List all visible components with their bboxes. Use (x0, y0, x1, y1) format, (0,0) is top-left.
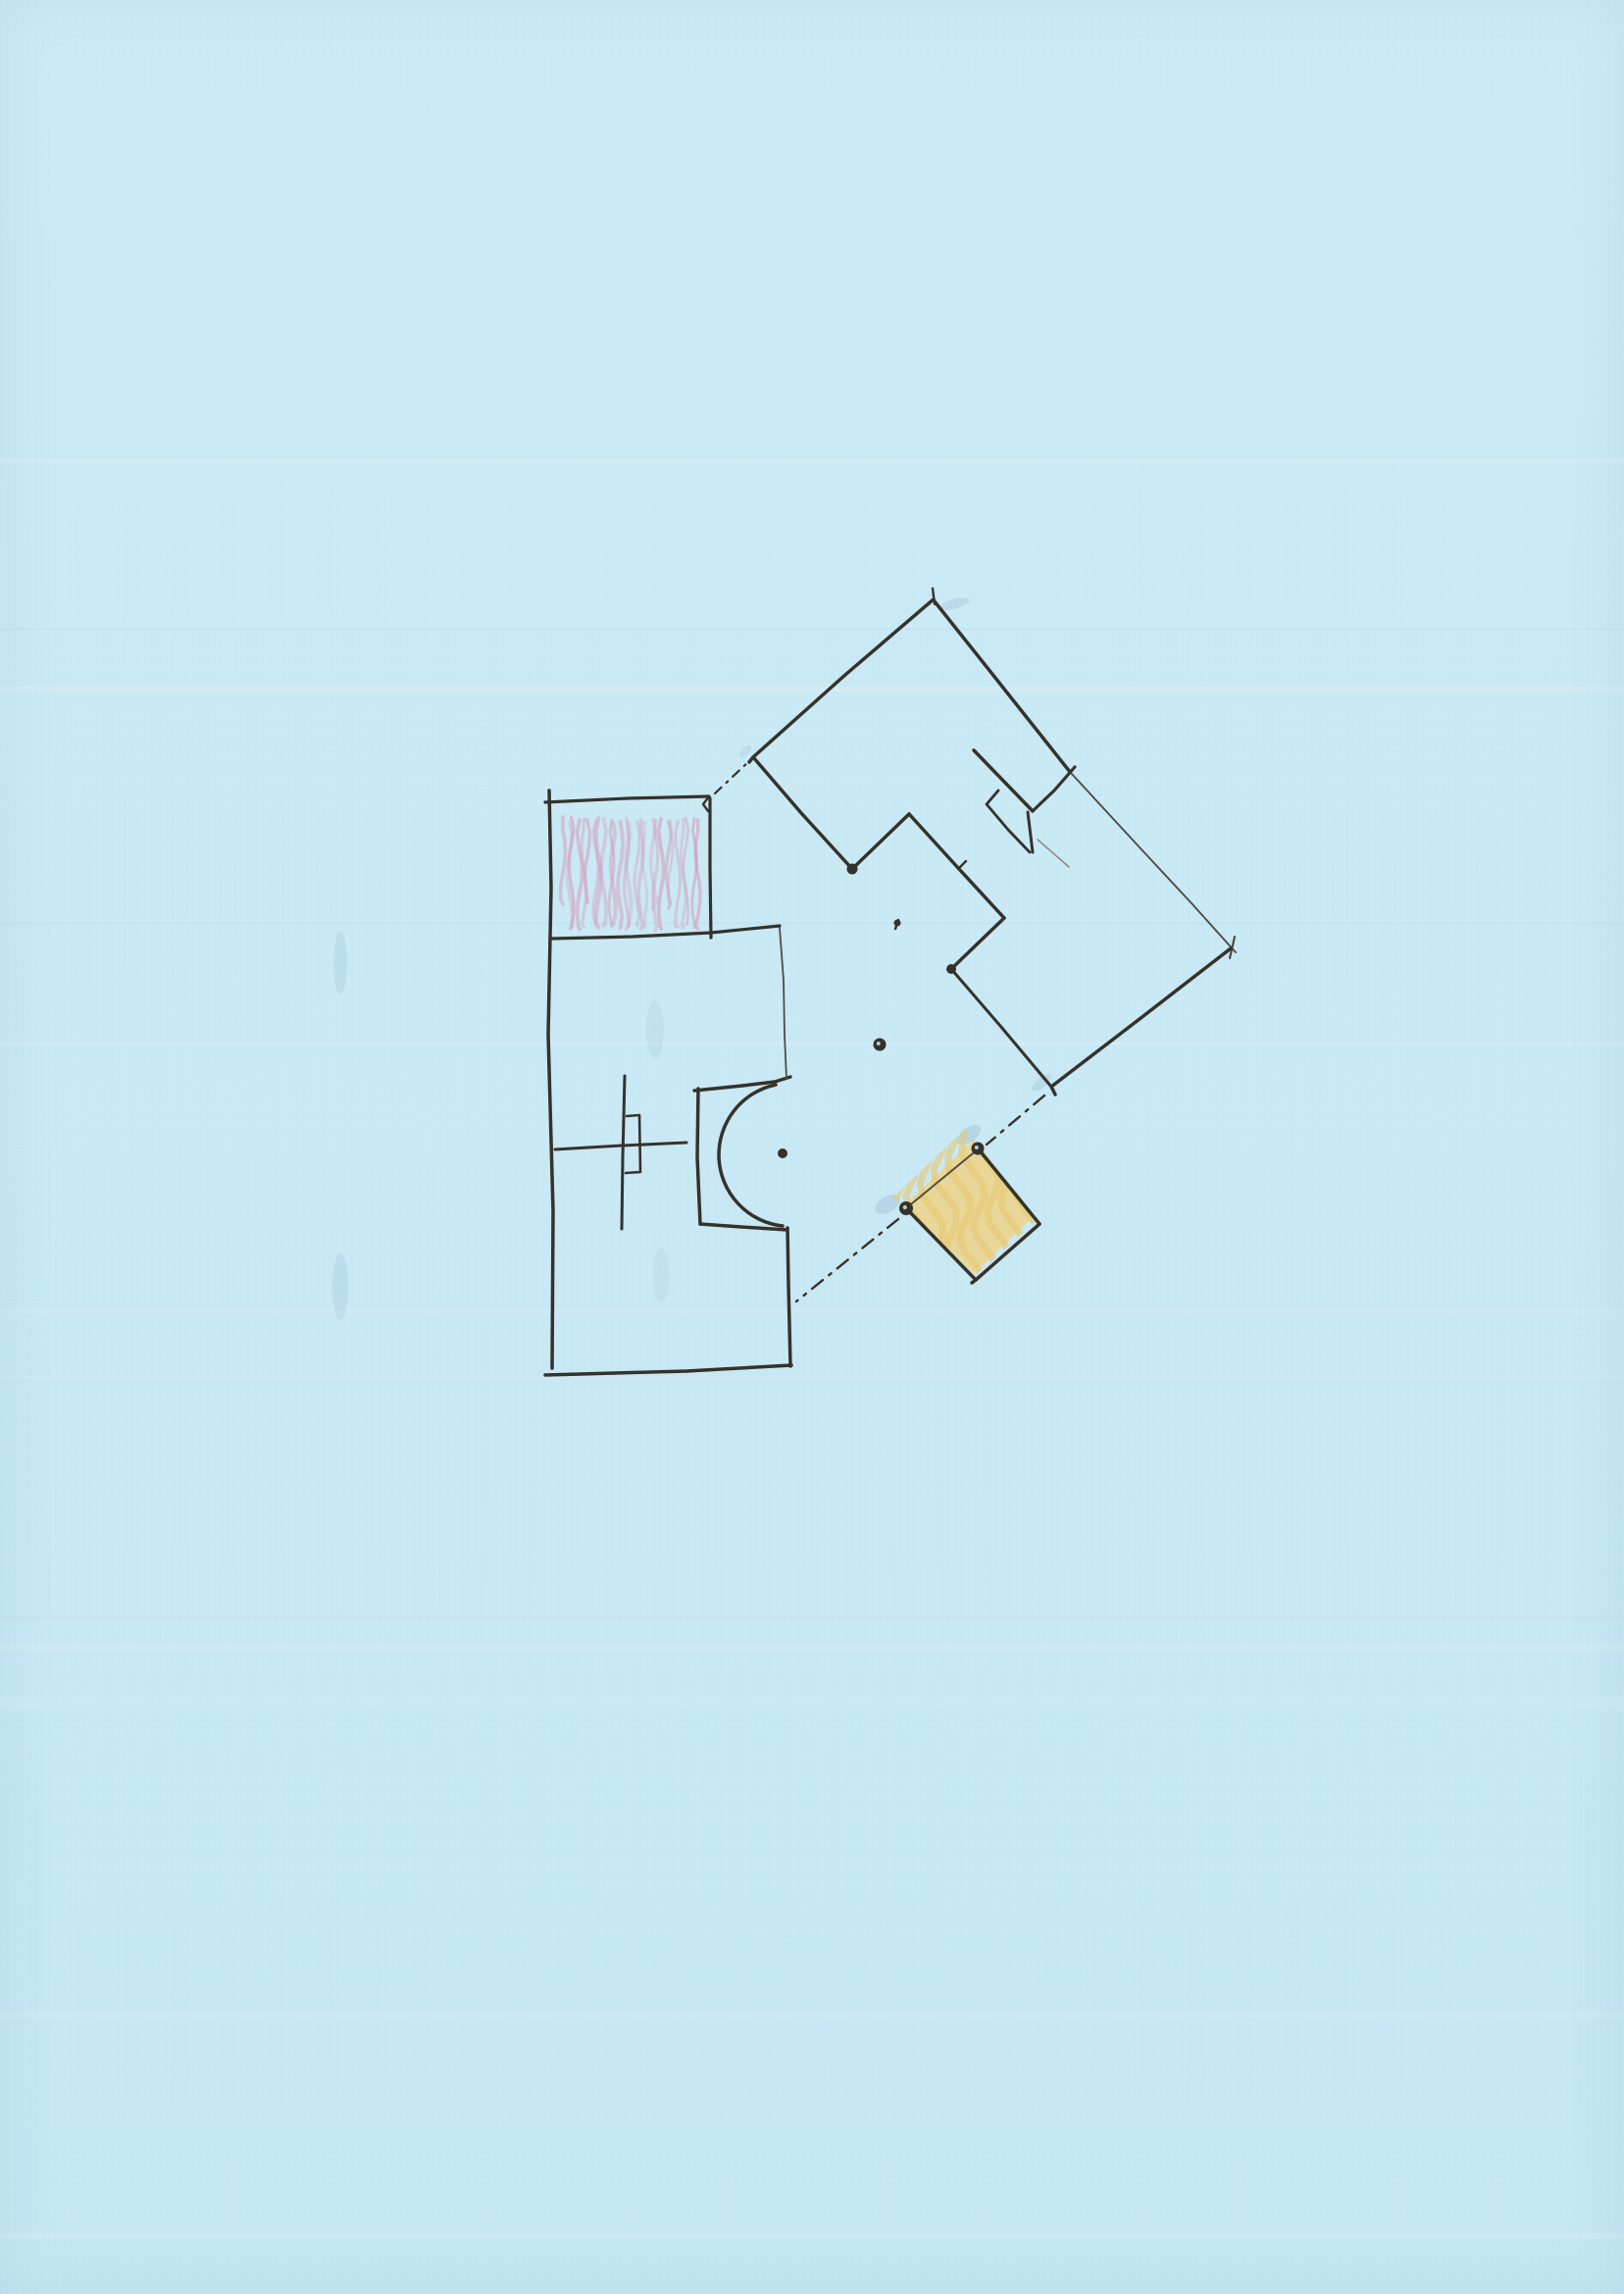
smudge-mark (653, 1248, 669, 1302)
scan-band (0, 1644, 1624, 1652)
left-outer-wall-east-upper (780, 928, 787, 1079)
floor-plan-sketch (0, 0, 1624, 2294)
rot-step-tick (958, 861, 966, 869)
rot-wall-se (1051, 948, 1231, 1095)
corner-dot-notch (847, 864, 858, 875)
corner-dot-step (946, 964, 956, 974)
rot-wall-nw (749, 599, 934, 762)
scan-band (0, 459, 1624, 463)
corner-dot-step-mark (946, 964, 956, 974)
pink-hatch-stroke (676, 821, 681, 927)
smudge-mark (333, 932, 347, 994)
niche-arc (719, 1085, 783, 1226)
smudge-mark (646, 1000, 664, 1059)
scan-band (0, 922, 1624, 925)
spiral-dot-highlight (877, 1042, 881, 1045)
comma-dot (894, 920, 901, 930)
rot-wall-sw-step2 (909, 814, 1004, 918)
rot-door-leaf (1028, 812, 1033, 852)
rot-interior-partition (974, 750, 1033, 811)
rot-wall-ne-upper (934, 600, 1070, 772)
scan-band (0, 628, 1624, 631)
rot-interior-wall-tick (1034, 767, 1075, 810)
niche-dot (778, 1148, 787, 1158)
rot-door-swing (1038, 840, 1069, 867)
spiral-dot (874, 1039, 887, 1051)
niche-dot-mark (778, 1148, 787, 1158)
pink-hatch-stroke (561, 817, 566, 904)
yellow-scribble-stroke (1029, 1128, 1055, 1279)
left-interior-wall (555, 1143, 686, 1149)
annex-dot-north-highlight (975, 1146, 979, 1149)
pink-hatch (561, 817, 700, 930)
left-outer-wall-west (548, 790, 553, 1368)
niche-wall-west (697, 1089, 700, 1224)
pink-hatch-stroke (659, 819, 664, 929)
axis-line-nw (715, 761, 749, 793)
rot-wall-west (753, 757, 852, 869)
scan-band (0, 687, 1624, 691)
scan-bands (0, 459, 1624, 2239)
yellow-scribble-stroke (1013, 1128, 1039, 1279)
scan-band (0, 1376, 1624, 1379)
pink-hatch-stroke (618, 822, 623, 928)
scan-band (0, 2013, 1624, 2017)
axis-line-se (987, 1096, 1044, 1145)
smudge-mark (332, 1253, 348, 1320)
pink-hatch-stroke (584, 820, 589, 902)
pink-room-east-wall (710, 798, 711, 938)
left-door-leaf (622, 1076, 625, 1229)
pink-room-north-wall (545, 796, 709, 802)
rot-step-riser (951, 918, 1004, 969)
rot-wall-ne-lower (1070, 772, 1236, 952)
scan-band (0, 1042, 1624, 1045)
rot-wall-sw-step1 (951, 969, 1051, 1087)
rot-notch-wall (852, 814, 909, 869)
left-outer-wall-east-lower (787, 1228, 790, 1366)
pink-hatch-stroke (601, 819, 606, 926)
ink-strokes (545, 588, 1236, 1375)
axis-line-south (796, 1219, 898, 1301)
scan-band (0, 1697, 1624, 1710)
left-wing-north-wall (551, 926, 780, 939)
corner-dot-notch-mark (847, 864, 858, 875)
annex-dot-north (972, 1143, 985, 1155)
scan-band (0, 1616, 1624, 1618)
pink-hatch-stroke (642, 823, 647, 928)
left-outer-wall-south (545, 1365, 791, 1375)
annex-dot-west (899, 1201, 913, 1215)
scan-band (0, 1309, 1624, 1313)
scanned-blue-paper (0, 0, 1624, 2294)
scan-band (0, 2233, 1624, 2239)
pink-corner-hook (703, 796, 709, 811)
annex-dot-west-highlight (903, 1205, 907, 1209)
